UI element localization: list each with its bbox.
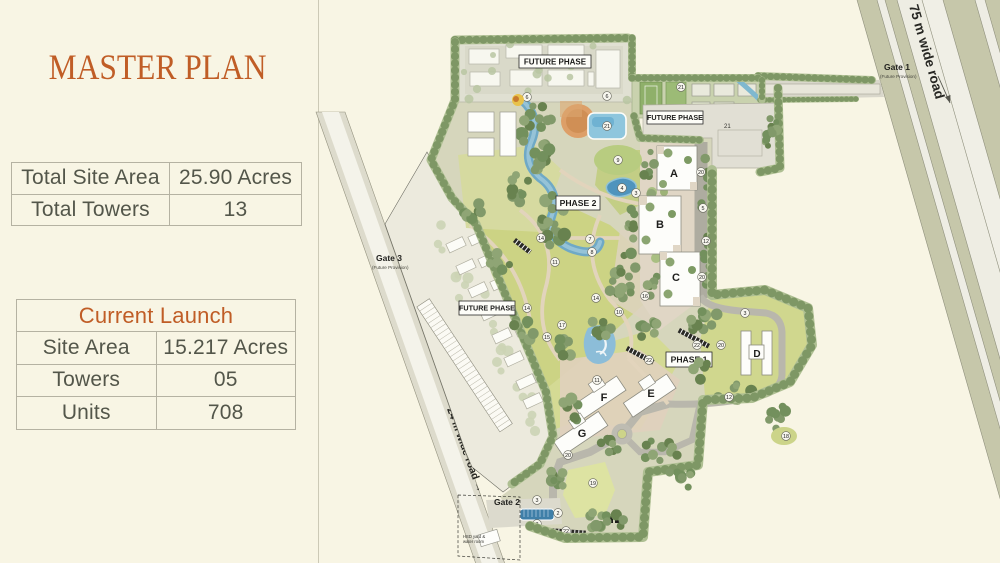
svg-text:5: 5 <box>702 206 705 212</box>
svg-text:14: 14 <box>524 306 530 312</box>
svg-text:water room: water room <box>463 539 484 544</box>
svg-text:E: E <box>647 388 654 400</box>
svg-text:6: 6 <box>606 94 609 100</box>
svg-text:14: 14 <box>538 236 544 242</box>
svg-text:10: 10 <box>616 310 622 316</box>
svg-text:(Future Provision): (Future Provision) <box>880 74 917 79</box>
svg-text:11: 11 <box>552 260 558 266</box>
svg-text:B: B <box>656 219 664 231</box>
svg-text:6: 6 <box>526 95 529 101</box>
svg-text:FUTURE PHASE: FUTURE PHASE <box>524 57 587 66</box>
svg-text:C: C <box>672 272 680 284</box>
svg-text:12: 12 <box>703 239 709 245</box>
svg-text:4: 4 <box>621 186 624 192</box>
svg-text:Gate 1: Gate 1 <box>884 62 910 72</box>
svg-text:16: 16 <box>642 294 648 300</box>
svg-text:20: 20 <box>698 170 704 176</box>
svg-text:18: 18 <box>783 434 789 440</box>
svg-text:3: 3 <box>744 311 747 317</box>
svg-text:G: G <box>578 428 587 440</box>
svg-text:FUTURE PHASE: FUTURE PHASE <box>459 304 515 313</box>
svg-text:(Future Provision): (Future Provision) <box>372 265 409 270</box>
svg-text:14: 14 <box>593 296 599 302</box>
svg-text:22: 22 <box>694 343 700 349</box>
svg-text:D: D <box>753 349 760 360</box>
svg-text:FUTURE PHASE: FUTURE PHASE <box>647 113 703 122</box>
svg-text:12: 12 <box>726 395 732 401</box>
svg-text:20: 20 <box>699 275 705 281</box>
svg-text:20: 20 <box>565 453 571 459</box>
svg-text:PHASE 2: PHASE 2 <box>560 198 597 208</box>
svg-text:22: 22 <box>646 358 652 364</box>
svg-text:11: 11 <box>594 378 600 384</box>
svg-text:F: F <box>601 392 608 404</box>
svg-text:15: 15 <box>544 335 550 341</box>
svg-text:8: 8 <box>591 250 594 256</box>
svg-text:Gate 3: Gate 3 <box>376 253 402 263</box>
svg-text:21: 21 <box>678 85 684 91</box>
svg-text:3: 3 <box>536 498 539 504</box>
svg-text:2: 2 <box>557 511 560 517</box>
svg-text:9: 9 <box>617 158 620 164</box>
svg-text:A: A <box>670 168 678 180</box>
svg-text:7: 7 <box>589 237 592 243</box>
svg-text:3: 3 <box>635 191 638 197</box>
svg-text:20: 20 <box>718 343 724 349</box>
svg-text:21: 21 <box>604 124 610 130</box>
svg-text:21: 21 <box>724 124 731 130</box>
svg-text:Gate 2: Gate 2 <box>494 497 520 507</box>
svg-text:19: 19 <box>590 481 596 487</box>
svg-text:17: 17 <box>559 323 565 329</box>
